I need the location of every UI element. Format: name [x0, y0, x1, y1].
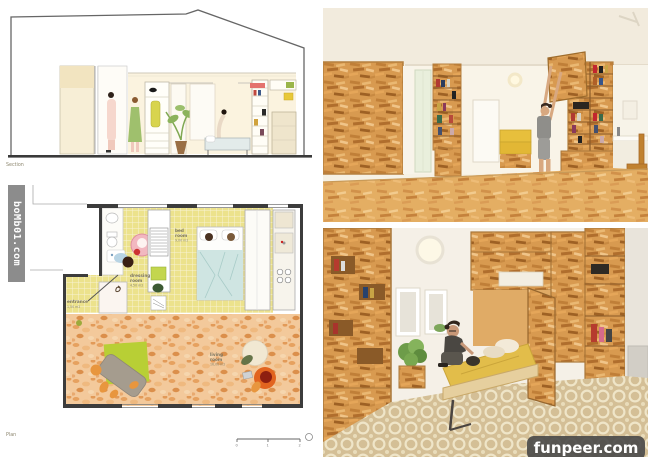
- section-wardrobe: [145, 82, 169, 154]
- toilet: [107, 237, 117, 247]
- section-label: Section: [6, 162, 24, 168]
- svg-text:room: room: [130, 278, 143, 283]
- scale-numbers: 0 1 2: [236, 444, 301, 448]
- photo-open-living-space: [323, 8, 648, 222]
- plan-site-lines: [30, 185, 87, 270]
- bookshelf-left: [433, 64, 461, 150]
- svg-text:16,00 m2: 16,00 m2: [210, 363, 225, 367]
- svg-text:4,50 m2: 4,50 m2: [130, 284, 143, 288]
- red-box-on-shelf: [250, 83, 265, 88]
- svg-text:1,50 m2: 1,50 m2: [67, 305, 80, 309]
- pillow-2: [483, 346, 505, 358]
- section-window-panel: [190, 84, 215, 140]
- sill-plant: [434, 324, 446, 332]
- small-plant-dot: [76, 320, 82, 326]
- glass-door: [415, 70, 431, 172]
- shower-room: [99, 282, 127, 313]
- entrance-label: entrance: [67, 299, 88, 304]
- round-ceiling-light-icon: [417, 237, 443, 263]
- white-door: [473, 100, 499, 162]
- photo-bedroom-folddown-bed: [323, 228, 648, 457]
- white-pillar: [403, 66, 413, 174]
- canopy-right-column: [551, 232, 587, 362]
- svg-text:0: 0: [236, 444, 239, 448]
- sleeper-head-2: [227, 233, 235, 241]
- recessed-panel: [499, 272, 543, 286]
- bed-side-panel: [528, 288, 555, 406]
- sink: [106, 213, 118, 223]
- dark-box: [591, 264, 609, 274]
- watermark-funpeer-text: funpeer.com: [534, 439, 639, 457]
- svg-text:9,00 m2: 9,00 m2: [175, 239, 188, 243]
- apartment-design-collage: Section: [0, 0, 650, 457]
- watermark-vertical-text: boMb01.com: [11, 201, 22, 266]
- osb-sliding-panel: [323, 62, 403, 174]
- svg-text:room: room: [175, 233, 188, 238]
- svg-text:1: 1: [267, 444, 269, 448]
- floor-plan-drawing: bed room 9,00 m2 dressing room 4,50 m2 e…: [0, 180, 323, 457]
- osb-box-left: [435, 148, 461, 176]
- svg-text:2: 2: [299, 444, 301, 448]
- ceiling-light-icon: [509, 74, 521, 86]
- north-symbol-icon: [306, 434, 313, 441]
- hair-bun-2: [445, 325, 450, 330]
- sleeper-head-1: [205, 233, 213, 241]
- stereo-box: [573, 102, 589, 109]
- section-hall: [98, 66, 127, 154]
- bottle: [617, 127, 620, 136]
- section-bookshelf: [250, 80, 268, 154]
- watermark-vertical: boMb01.com: [8, 185, 25, 282]
- svg-text:room: room: [210, 357, 223, 362]
- hat-icon: [149, 88, 157, 92]
- closet-column: [245, 210, 270, 310]
- section-left-closet: [60, 66, 98, 154]
- bookshelf-right-bedroom: [585, 228, 625, 380]
- watermark-funpeer: funpeer.com: [527, 436, 645, 457]
- dark-bag: [466, 356, 480, 366]
- scale-bar: [237, 439, 300, 442]
- fridge: [275, 212, 293, 228]
- yellow-platform: [500, 130, 531, 168]
- plan-label-text: Plan: [6, 432, 16, 438]
- ground-line: [8, 155, 312, 158]
- bathroom: [102, 208, 123, 275]
- hair-bun: [548, 104, 552, 108]
- figure-head-top-view: [123, 257, 134, 268]
- section-drawing: Section: [0, 0, 323, 180]
- folding-bed-panel: [548, 52, 587, 102]
- kitchen-window: [623, 101, 637, 119]
- double-bed: [197, 227, 243, 300]
- kitchen: [273, 210, 295, 310]
- yellow-dress: [151, 101, 160, 127]
